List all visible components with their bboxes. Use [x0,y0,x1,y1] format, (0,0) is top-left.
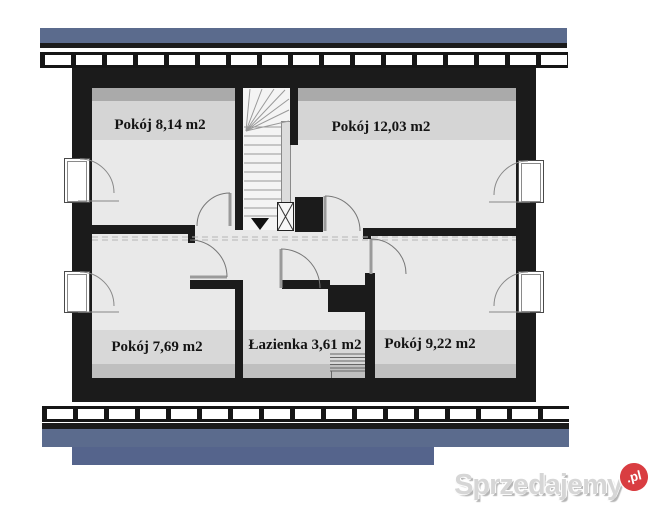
roof-ridge-top [40,28,567,43]
stair-wall-left [235,88,243,230]
knee-wall-band-bottom-dark [92,364,516,378]
chimney-hatch-box [277,202,294,231]
window-left-upper [64,158,90,203]
window-right-upper [518,160,544,203]
chimney-block [295,197,323,232]
watermark-brand-text: Sprzedajemy [438,469,622,502]
room-label-pokoj-12-03: Pokój 12,03 m2 [311,119,451,136]
bathroom-wall-top [282,280,330,289]
roof-eave-line-top [40,43,567,48]
room-label-lazienka: Łazienka 3,61 m2 [235,337,375,354]
bathroom-duct-block [328,285,368,312]
knee-wall-band-top-dark [92,88,516,101]
room-label-pokoj-8-14: Pokój 8,14 m2 [90,117,230,134]
roof-band-bottom [42,429,569,447]
exterior-wall-top [72,68,536,88]
floor-plan: Pokój 8,14 m2 Pokój 12,03 m2 Pokój 7,69 … [0,0,666,522]
bathroom-wall-right [365,273,375,378]
window-frame [67,161,87,202]
wall-nub-room-top-right [363,228,371,239]
window-left-lower [64,271,90,313]
room-label-pokoj-7-69: Pokój 7,69 m2 [87,339,227,356]
bathroom-wall-left [235,280,243,378]
window-right-lower [518,271,544,313]
exterior-wall-right [516,88,536,378]
watermark-pl-badge: .pl [617,460,651,494]
window-frame [67,274,87,312]
wall-room-top-left-hall [92,225,195,234]
roof-band-bottom-overhang [72,447,434,465]
exterior-wall-left [72,88,92,378]
wall-room-top-right-bottom-right [363,228,516,236]
exterior-wall-bottom [72,378,536,402]
rafter-band-bottom [42,406,569,422]
rafter-band-top [40,52,568,68]
wall-nub-room-top-left [188,225,195,243]
window-frame [521,163,541,202]
stair-wall-right [290,88,298,145]
window-frame [521,274,541,312]
room-label-pokoj-9-22: Pokój 9,22 m2 [360,336,500,353]
watermark: Sprzedajemy .pl [438,460,658,500]
